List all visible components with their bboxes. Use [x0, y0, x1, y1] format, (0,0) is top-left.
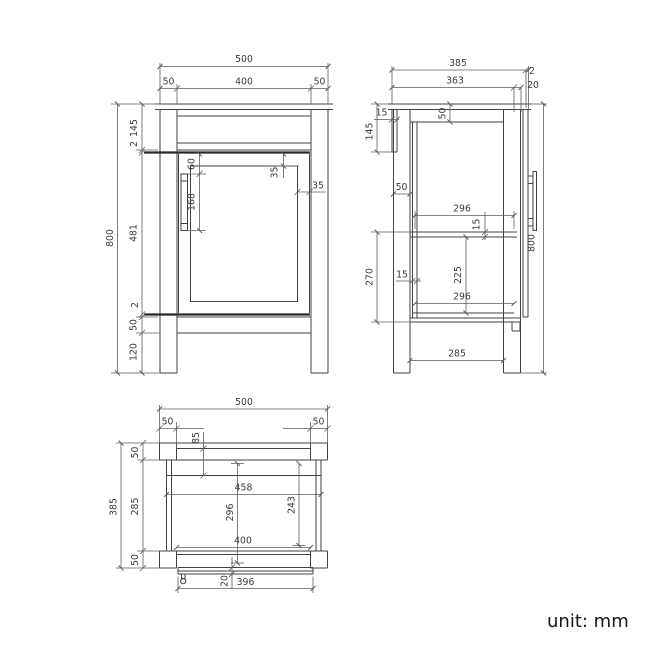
plan-view-dimensions: 500 50 50 85 50 385 285 458 296 243 400 … — [109, 397, 331, 593]
door-handle-plan-knob — [181, 579, 186, 584]
dim-side-wall-thickness: 15 — [396, 270, 408, 281]
drawing-canvas: 500 50 400 50 800 145 2 481 2 50 120 60 … — [0, 0, 650, 650]
front-view-structure — [144, 104, 333, 373]
dim-front-handle-length: 168 — [187, 193, 198, 211]
dim-front-foot-height: 120 — [129, 343, 140, 361]
dim-side-back-panel-gap: 2 — [529, 66, 535, 77]
dim-plan-left-leg: 50 — [162, 417, 174, 428]
dim-plan-opening-width: 400 — [234, 536, 252, 547]
dim-front-door-height: 481 — [129, 224, 140, 242]
dim-plan-carcass-width: 458 — [235, 483, 253, 494]
dim-front-total-height: 800 — [105, 229, 116, 247]
dim-plan-shelf-depth: 243 — [287, 496, 298, 514]
dim-front-top-height: 145 — [129, 119, 140, 137]
dim-plan-right-leg: 50 — [313, 417, 325, 428]
dim-side-interior-depth-bottom: 296 — [453, 292, 471, 303]
dim-front-rail-height: 50 — [129, 319, 140, 331]
dim-front-opening-width: 400 — [235, 77, 253, 88]
door-handle-side-stub-top — [528, 176, 533, 184]
dim-front-frame-top: 35 — [270, 167, 281, 179]
dim-side-overall-depth: 385 — [449, 58, 467, 69]
dim-side-back-strip: 15 — [376, 108, 388, 119]
dim-front-top-gap: 2 — [129, 141, 140, 147]
cabinet-technical-drawing: 500 50 400 50 800 145 2 481 2 50 120 60 … — [0, 0, 650, 650]
dim-front-right-leg: 50 — [314, 77, 326, 88]
dim-front-handle-offset: 60 — [187, 158, 198, 170]
dim-plan-front-rail: 50 — [130, 554, 141, 566]
dim-side-top-height: 145 — [365, 123, 376, 141]
dim-side-leg-width: 50 — [396, 182, 408, 193]
unit-label: unit: mm — [547, 611, 629, 632]
dim-side-under-shelf: 225 — [453, 266, 464, 284]
dim-plan-back-rail: 50 — [130, 447, 141, 459]
dim-side-body-depth: 363 — [446, 76, 464, 87]
dim-side-interior-depth-top: 296 — [453, 204, 471, 215]
dim-front-left-leg: 50 — [163, 77, 175, 88]
side-view-structure — [388, 104, 537, 373]
dim-plan-door-gap: 20 — [220, 575, 231, 587]
door-handle-side-stub-bottom — [528, 219, 533, 227]
front-view-dimensions: 500 50 400 50 800 145 2 481 2 50 120 60 … — [105, 54, 328, 373]
dim-side-shelf-thickness: 15 — [472, 219, 483, 231]
door-handle-plan-stem — [182, 574, 186, 579]
dim-side-total-height: 800 — [527, 234, 538, 252]
door-handle-side-bar — [533, 172, 537, 231]
dim-plan-back-inset: 85 — [191, 432, 202, 444]
dim-plan-door-width: 396 — [237, 577, 255, 588]
dim-plan-interior-length: 296 — [225, 504, 236, 522]
dim-side-top-rail: 50 — [438, 108, 449, 120]
dim-side-lower-height: 270 — [365, 268, 376, 286]
dim-plan-overall-depth: 385 — [109, 498, 120, 516]
dim-front-overall-width: 500 — [235, 54, 253, 65]
dim-plan-interior-depth: 285 — [130, 498, 141, 516]
dim-front-frame-side: 35 — [312, 181, 324, 192]
dim-front-bottom-gap: 2 — [130, 302, 141, 308]
dim-side-leg-spacing: 285 — [448, 349, 466, 360]
dim-plan-overall-width: 500 — [235, 397, 253, 408]
dim-side-door-thickness: 20 — [527, 80, 539, 91]
